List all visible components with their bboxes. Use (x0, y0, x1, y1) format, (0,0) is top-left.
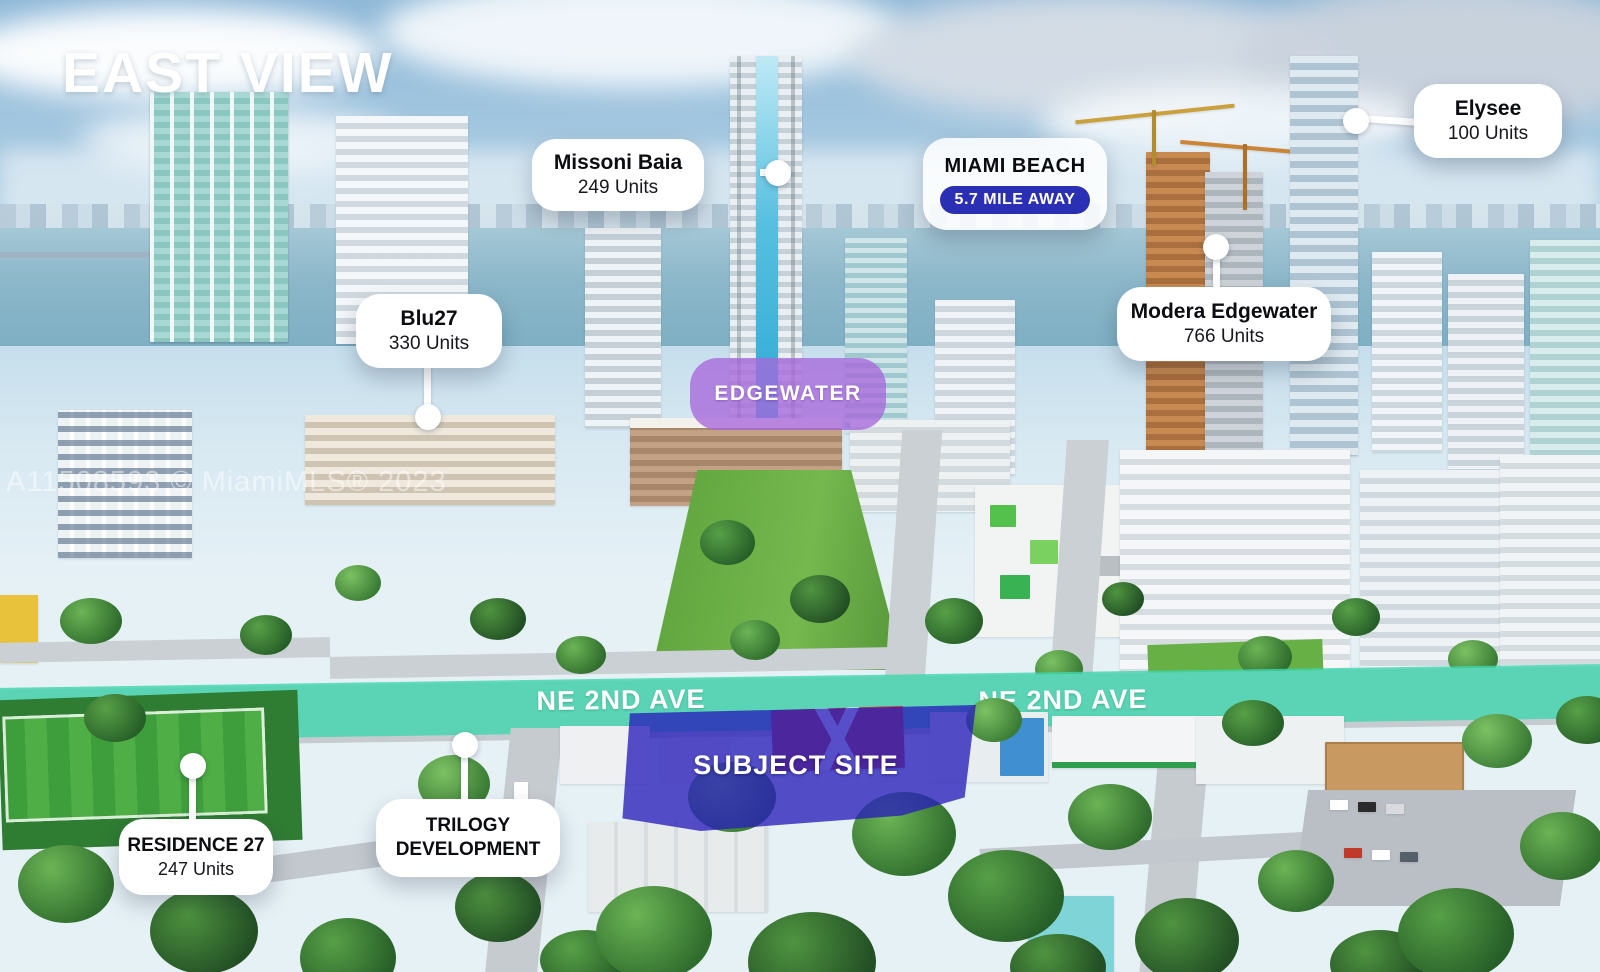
residence-27-connector-dot (180, 753, 206, 779)
elysee-name: Elysee (1455, 96, 1522, 122)
tree (1398, 888, 1514, 972)
car (1372, 850, 1390, 860)
tree (730, 620, 780, 660)
trilogy-name-line-1: TRILOGY (426, 814, 510, 838)
mls-watermark: A11508593 © MiamiMLS® 2023 (6, 466, 447, 499)
tree (1462, 714, 1532, 768)
street-label-ne-2nd-ave-center: NE 2ND AVE (515, 684, 727, 717)
tree (966, 698, 1022, 742)
tree (1068, 784, 1152, 850)
facade-panel (1098, 556, 1120, 576)
blu27-connector-dot (415, 404, 441, 430)
facade-panel (1000, 575, 1030, 599)
tree (470, 598, 526, 640)
tree (1102, 582, 1144, 616)
callout-residence-27: RESIDENCE 27 247 Units (119, 819, 273, 895)
tower (585, 228, 661, 428)
callout-miami-beach: MIAMI BEACH 5.7 MILE AWAY (923, 138, 1107, 230)
subject-site-label: SUBJECT SITE (615, 750, 977, 781)
tower (1530, 240, 1600, 455)
trilogy-name-line-2: DEVELOPMENT (396, 838, 541, 862)
tower-facade (150, 92, 288, 342)
elysee-units: 100 Units (1448, 122, 1528, 146)
callout-missoni-baia: Missoni Baia 249 Units (532, 139, 704, 211)
tree (1258, 850, 1334, 912)
callout-blu27: Blu27 330 Units (356, 294, 502, 368)
tree (150, 888, 258, 972)
missoni-baia-connector-dot (765, 160, 791, 186)
tree (335, 565, 381, 601)
crane-mast (1152, 110, 1156, 166)
tree (60, 598, 122, 644)
trilogy-connector-dot (452, 732, 478, 758)
residence-27-units: 247 Units (158, 858, 234, 881)
edgewater-neighborhood-badge: EDGEWATER (690, 358, 886, 430)
tree (925, 598, 983, 644)
tree (700, 520, 755, 565)
tree (596, 886, 712, 972)
tree (1520, 812, 1600, 880)
residence-27-name: RESIDENCE 27 (127, 834, 264, 858)
car (1358, 802, 1376, 812)
tree (240, 615, 292, 655)
miami-beach-distance-pill: 5.7 MILE AWAY (940, 186, 1090, 214)
modera-connector-dot (1203, 234, 1229, 260)
tree (84, 694, 146, 742)
car (1400, 852, 1418, 862)
tree (1222, 700, 1284, 746)
facade-panel (1030, 540, 1058, 564)
callout-trilogy-development: TRILOGY DEVELOPMENT (376, 799, 560, 877)
elysee-connector-dot (1343, 108, 1369, 134)
facade-panel (990, 505, 1016, 527)
missoni-baia-units: 249 Units (578, 176, 658, 200)
tree (1135, 898, 1239, 972)
tower (1448, 274, 1524, 469)
crane-mast (1243, 144, 1247, 210)
tower (1372, 252, 1442, 452)
building (1500, 455, 1600, 680)
modera-edgewater-name: Modera Edgewater (1131, 299, 1318, 325)
missoni-baia-name: Missoni Baia (554, 150, 682, 176)
callout-elysee: Elysee 100 Units (1414, 84, 1562, 158)
trilogy-connector-line (461, 754, 468, 801)
residence-27-connector-line (189, 775, 196, 821)
miami-beach-title: MIAMI BEACH (944, 155, 1085, 178)
tree (790, 575, 850, 623)
modera-edgewater-units: 766 Units (1184, 325, 1264, 349)
tree (556, 636, 606, 674)
tree (1332, 598, 1380, 636)
car (1344, 848, 1362, 858)
blu27-name: Blu27 (400, 306, 457, 332)
car (1386, 804, 1404, 814)
tree (455, 872, 541, 942)
callout-modera-edgewater: Modera Edgewater 766 Units (1117, 287, 1331, 361)
blu27-units: 330 Units (389, 332, 469, 356)
tree (18, 845, 114, 923)
aerial-photo-stage: NE 2ND AVE NE 2ND AVE NE 2ND AVE (0, 0, 1600, 972)
car (1330, 800, 1348, 810)
tree (948, 850, 1064, 942)
view-title: EAST VIEW (62, 40, 394, 106)
